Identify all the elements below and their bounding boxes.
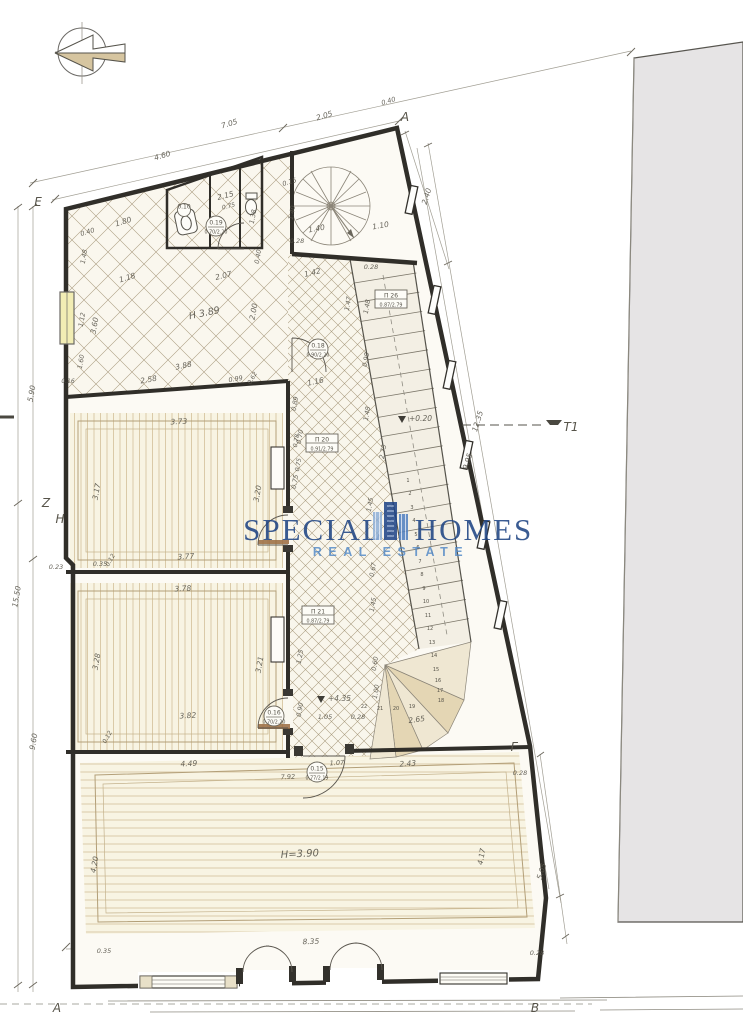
stair-step-number: 13: [429, 640, 435, 646]
axis-marker: A: [400, 110, 409, 124]
axis-marker: E: [34, 195, 42, 209]
stair-step-number: 10: [423, 599, 429, 605]
dimension-label: 4.60: [153, 149, 172, 163]
dimension-label: 5.90: [26, 384, 38, 402]
level-value: +4.35: [328, 694, 351, 703]
dimension-label: 8.35: [302, 937, 319, 947]
dimension-label: 7.05: [220, 117, 239, 131]
dimension-label: 3.77: [177, 552, 194, 562]
stair-step-number: 14: [431, 653, 437, 659]
stair-step-number: 2: [408, 491, 411, 497]
stair-step-number: 21: [377, 706, 383, 712]
dimension-label: 0.28: [513, 769, 527, 777]
tag-size: 0.70/2.20: [205, 230, 228, 236]
window-tag: П 200.91/2.79: [306, 434, 338, 453]
axis-marker: B: [531, 1001, 539, 1015]
tag-number: 0.19: [209, 220, 223, 227]
entrance-hall: [68, 153, 291, 396]
dimension-label: 0.23: [49, 563, 63, 571]
stair-step-number: 22: [361, 704, 367, 710]
stair-step-number: 15: [433, 667, 439, 673]
dimension-label: H=3.90: [281, 848, 320, 861]
window-tag: П 210.87/2.79: [302, 606, 334, 625]
stair-step-number: 16: [435, 678, 441, 684]
door-tag: 0.10: [177, 204, 191, 217]
level-value: +0.20: [409, 414, 432, 423]
tag-size: 0.77/2.19: [306, 776, 329, 782]
north-arrow-icon: [55, 22, 125, 84]
tag-number: П 21: [311, 609, 325, 616]
tag-number: П 26: [384, 293, 398, 300]
dimension-label: 0.35: [97, 947, 111, 955]
stair-step-number: 17: [437, 688, 443, 694]
toilet-tank: [246, 193, 257, 199]
stair-step-number: 18: [438, 698, 444, 704]
tag-number: 0.10: [177, 204, 191, 211]
dimension-label: 0.28: [290, 237, 304, 245]
dimension-label: 2.05: [315, 109, 334, 123]
dimension-label: 0.28: [351, 713, 365, 721]
dimension-label: 12.35: [470, 409, 485, 432]
spiral-staircase: [292, 167, 370, 245]
stair-step-number: 1: [406, 478, 409, 484]
watermark-word2: HOMES: [415, 512, 534, 547]
stair-step-number: 9: [422, 586, 425, 592]
floorplan-page: 4.607.052.050.402.400.151.401.401.100.28…: [0, 0, 743, 1023]
dimension-label: 0.16: [61, 378, 75, 385]
tag-size: 0.90/2.20: [307, 353, 330, 359]
tag-number: 0.18: [311, 343, 325, 350]
dimension-label: 0.28: [530, 949, 544, 957]
axis-marker: A: [52, 1001, 61, 1015]
stair-step-number: 3: [410, 505, 413, 511]
stair-step-number: 7: [418, 559, 421, 565]
dimension-label: 3.82: [179, 711, 196, 721]
dimension-label: 1.05: [318, 713, 332, 721]
stair-step-number: 8: [420, 572, 423, 578]
dimension-label: 0.40: [380, 95, 396, 107]
stair-step-number: 12: [427, 626, 433, 632]
dimension-label: 3.73: [170, 417, 187, 427]
dimension-label: 0.28: [364, 263, 378, 271]
watermark-tagline: REAL ESTATE: [313, 545, 469, 559]
room-2: [70, 583, 283, 750]
dimension-label: 2.43: [399, 758, 417, 768]
floorplan-drawing: 4.607.052.050.402.400.151.401.401.100.28…: [0, 0, 743, 1023]
tag-number: 0.15: [310, 766, 324, 773]
axis-marker: H: [55, 512, 64, 526]
tag-number: П 20: [315, 437, 329, 444]
axis-marker: T1: [564, 420, 579, 434]
watermark-word1: SPECIAL: [243, 512, 383, 547]
dimension-label: 2.40: [420, 187, 434, 206]
dimension-label: 15.50: [10, 585, 23, 608]
dimension-label: 7.92: [280, 773, 295, 782]
stair-step-number: 11: [425, 613, 431, 619]
tag-size: 0.70/2.20: [263, 720, 286, 726]
dimension-label: 9.60: [28, 732, 40, 750]
tag-size: 0.87/2.79: [380, 303, 403, 309]
dimension-label: 4.49: [180, 759, 197, 769]
axis-marker: Z: [41, 496, 51, 510]
stair-step-number: 20: [393, 706, 399, 712]
stair-step-number: 19: [409, 704, 415, 710]
dimension-label: 1.07: [329, 759, 345, 768]
neighbor-building: [618, 42, 743, 922]
dimension-label: 3.78: [174, 584, 191, 594]
tag-size: 0.91/2.79: [311, 447, 334, 453]
tag-number: 0.16: [267, 710, 281, 717]
window-tag: П 260.87/2.79: [375, 290, 407, 309]
tag-size: 0.87/2.79: [307, 619, 330, 625]
